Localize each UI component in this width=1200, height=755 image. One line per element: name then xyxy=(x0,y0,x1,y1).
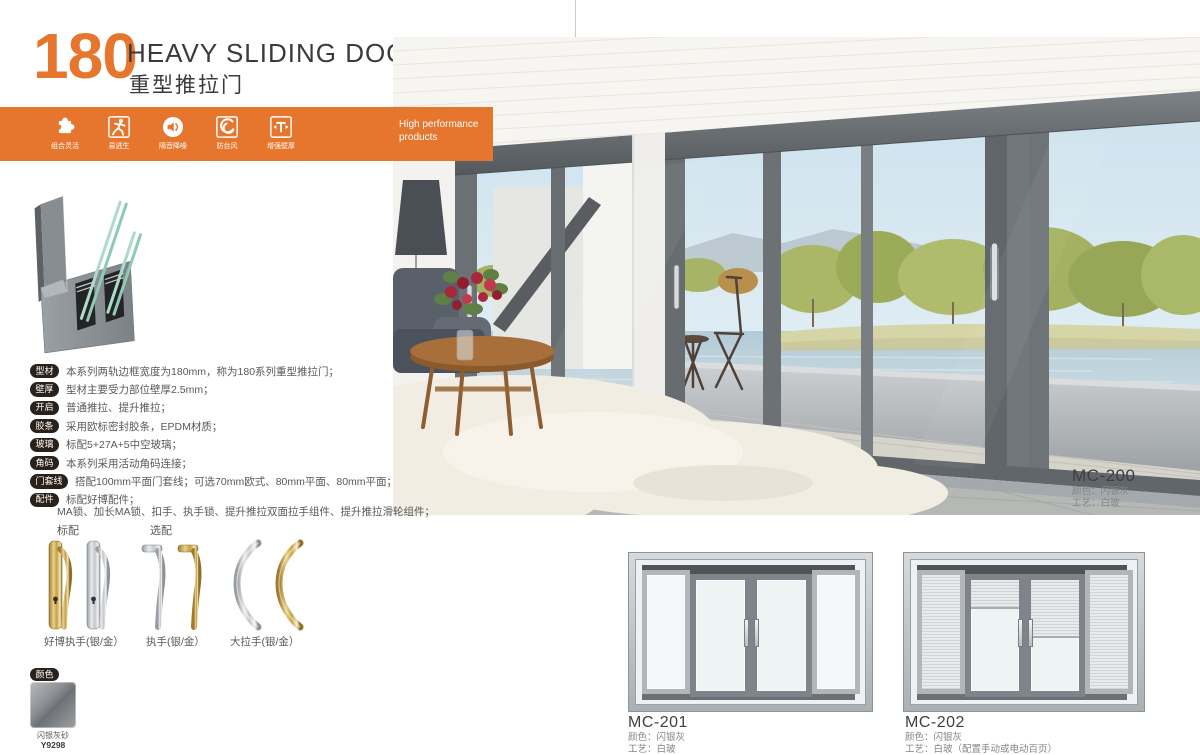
door-panel xyxy=(642,570,690,694)
page-title-cn: 重型推拉门 xyxy=(129,69,244,99)
door-handle xyxy=(1018,619,1023,647)
banner-tagline: High performance products xyxy=(399,118,478,144)
door-diagram-mc202 xyxy=(903,552,1145,712)
handle-lever-pair xyxy=(140,537,206,633)
feature-wall: 增强壁厚 xyxy=(262,116,300,151)
feature-combination: 组合灵活 xyxy=(46,116,84,151)
product-label-mc202: MC-202 颜色：闪银灰 工艺：白玻（配置手动或电动百页） xyxy=(905,714,1057,755)
spec-row: 型材本系列两轨边框宽度为180mm，称为180系列重型推拉门； xyxy=(30,362,397,380)
spec-row: 门套线搭配100mm平面门套线；可选70mm欧式、80mm平面、80mm平面； xyxy=(30,472,397,490)
handle-pull-pair xyxy=(226,537,310,633)
model-craft: 工艺：白玻 xyxy=(1072,498,1135,510)
door-inner xyxy=(635,559,866,705)
feature-icons: 组合灵活 易逃生 隔音降噪 防台风 增强壁厚 xyxy=(46,116,300,151)
louver-blind xyxy=(971,580,1019,609)
model-color: 颜色：闪银灰 xyxy=(905,732,1057,744)
door-handle xyxy=(754,619,759,647)
puzzle-icon xyxy=(54,116,76,138)
feature-typhoon: 防台风 xyxy=(208,116,246,151)
color-section-tag: 颜色 xyxy=(30,664,66,682)
model-color: 颜色：闪银灰 xyxy=(628,732,688,744)
spec-row: 玻璃标配5+27A+5中空玻璃； xyxy=(30,436,397,454)
haobo-handle-silver xyxy=(87,541,107,629)
model-craft: 工艺：白玻 xyxy=(628,744,688,755)
spec-text: 标配5+27A+5中空玻璃； xyxy=(66,437,182,452)
model-name: MC-202 xyxy=(905,714,1057,732)
louver-blind xyxy=(1031,580,1079,638)
spec-text: 型材主要受力部位壁厚2.5mm； xyxy=(66,382,214,397)
catalog-page: { "header": { "series_number": "180", "t… xyxy=(0,0,1200,754)
model-name: MC-200 xyxy=(1072,466,1135,486)
spec-tag: 壁厚 xyxy=(30,382,59,396)
spec-tag: 角码 xyxy=(30,456,59,470)
standard-label: 标配 xyxy=(57,522,79,538)
feature-escape: 易逃生 xyxy=(100,116,138,151)
blind-rail xyxy=(971,607,1019,609)
sound-insulation-icon xyxy=(162,116,184,138)
model-craft: 工艺：白玻（配置手动或电动百页） xyxy=(905,744,1057,755)
door-inner xyxy=(910,559,1138,705)
door-panel xyxy=(751,574,812,697)
spec-tag: 门套线 xyxy=(30,474,68,488)
profile-cross-section xyxy=(28,190,143,358)
handle-caption: 执手(银/金） xyxy=(146,634,205,649)
feature-label: 隔音降噪 xyxy=(154,141,192,151)
feature-label: 增强壁厚 xyxy=(262,141,300,151)
spec-row: 胶条采用欧标密封胶条，EPDM材质； xyxy=(30,417,397,435)
door-panel-blind xyxy=(965,574,1025,697)
spec-list: 型材本系列两轨边框宽度为180mm，称为180系列重型推拉门； 壁厚型材主要受力… xyxy=(30,362,397,509)
spec-text: 搭配100mm平面门套线；可选70mm欧式、80mm平面、80mm平面； xyxy=(75,474,397,489)
escape-runner-icon xyxy=(108,116,130,138)
product-label-mc200: MC-200 颜色：闪银灰 工艺：白玻 xyxy=(1072,466,1135,509)
series-number: 180 xyxy=(33,24,137,88)
swatch-code: Y9298 xyxy=(27,740,79,750)
spec-row: 壁厚型材主要受力部位壁厚2.5mm； xyxy=(30,380,397,398)
handle-caption: 大拉手(银/金） xyxy=(230,634,299,649)
typhoon-icon xyxy=(216,116,238,138)
page-gutter-line xyxy=(575,0,576,37)
spec-text: 本系列采用活动角码连接； xyxy=(66,456,192,471)
pull-handle-silver xyxy=(237,543,258,627)
lever-handle-silver xyxy=(142,545,162,627)
door-panel-blind xyxy=(917,570,965,694)
feature-label: 易逃生 xyxy=(100,141,138,151)
louver-blind xyxy=(1090,575,1128,689)
accessories-note: MA锁、加长MA锁、扣手、执手锁、提升推拉双面拉手组件、提升推拉滑轮组件； xyxy=(57,504,435,519)
spec-row: 开启普通推拉、提升推拉； xyxy=(30,399,397,417)
spec-tag: 开启 xyxy=(30,401,59,415)
door-diagram-mc201 xyxy=(628,552,873,712)
color-swatch xyxy=(30,682,76,728)
model-name: MC-201 xyxy=(628,714,688,732)
feature-label: 防台风 xyxy=(208,141,246,151)
door-panel-blind xyxy=(1025,574,1085,697)
door-panel xyxy=(812,570,860,694)
model-color: 颜色：闪银灰 xyxy=(1072,486,1135,498)
feature-banner: 组合灵活 易逃生 隔音降噪 防台风 增强壁厚 High p xyxy=(0,107,493,161)
door-panel-blind xyxy=(1085,570,1133,694)
louver-blind xyxy=(922,575,960,689)
door-handle xyxy=(1028,619,1033,647)
feature-sound: 隔音降噪 xyxy=(154,116,192,151)
spec-text: 普通推拉、提升推拉； xyxy=(66,400,171,415)
wall-thickness-icon xyxy=(270,116,292,138)
handle-caption: 好博执手(银/金） xyxy=(44,634,124,649)
spec-text: 本系列两轨边框宽度为180mm，称为180系列重型推拉门； xyxy=(66,364,339,379)
spec-tag: 型材 xyxy=(30,364,59,378)
haobo-handle-gold xyxy=(49,541,69,629)
door-handle xyxy=(744,619,749,647)
spec-text: 采用欧标密封胶条，EPDM材质； xyxy=(66,419,222,434)
pull-handle-gold xyxy=(279,543,300,627)
product-label-mc201: MC-201 颜色：闪银灰 工艺：白玻 xyxy=(628,714,688,755)
feature-label: 组合灵活 xyxy=(46,141,84,151)
spec-tag: 玻璃 xyxy=(30,438,59,452)
door-panel xyxy=(690,574,751,697)
handle-haobo-pair xyxy=(45,537,123,633)
optional-label: 选配 xyxy=(150,522,172,538)
blind-rail xyxy=(1031,636,1079,638)
spec-row: 角码本系列采用活动角码连接； xyxy=(30,454,397,472)
lever-handle-gold xyxy=(178,545,198,627)
spec-tag: 胶条 xyxy=(30,419,59,433)
hero-photo xyxy=(393,37,1200,515)
spec-tag: 配件 xyxy=(30,493,59,507)
page-title-en: HEAVY SLIDING DOOR xyxy=(127,38,427,69)
